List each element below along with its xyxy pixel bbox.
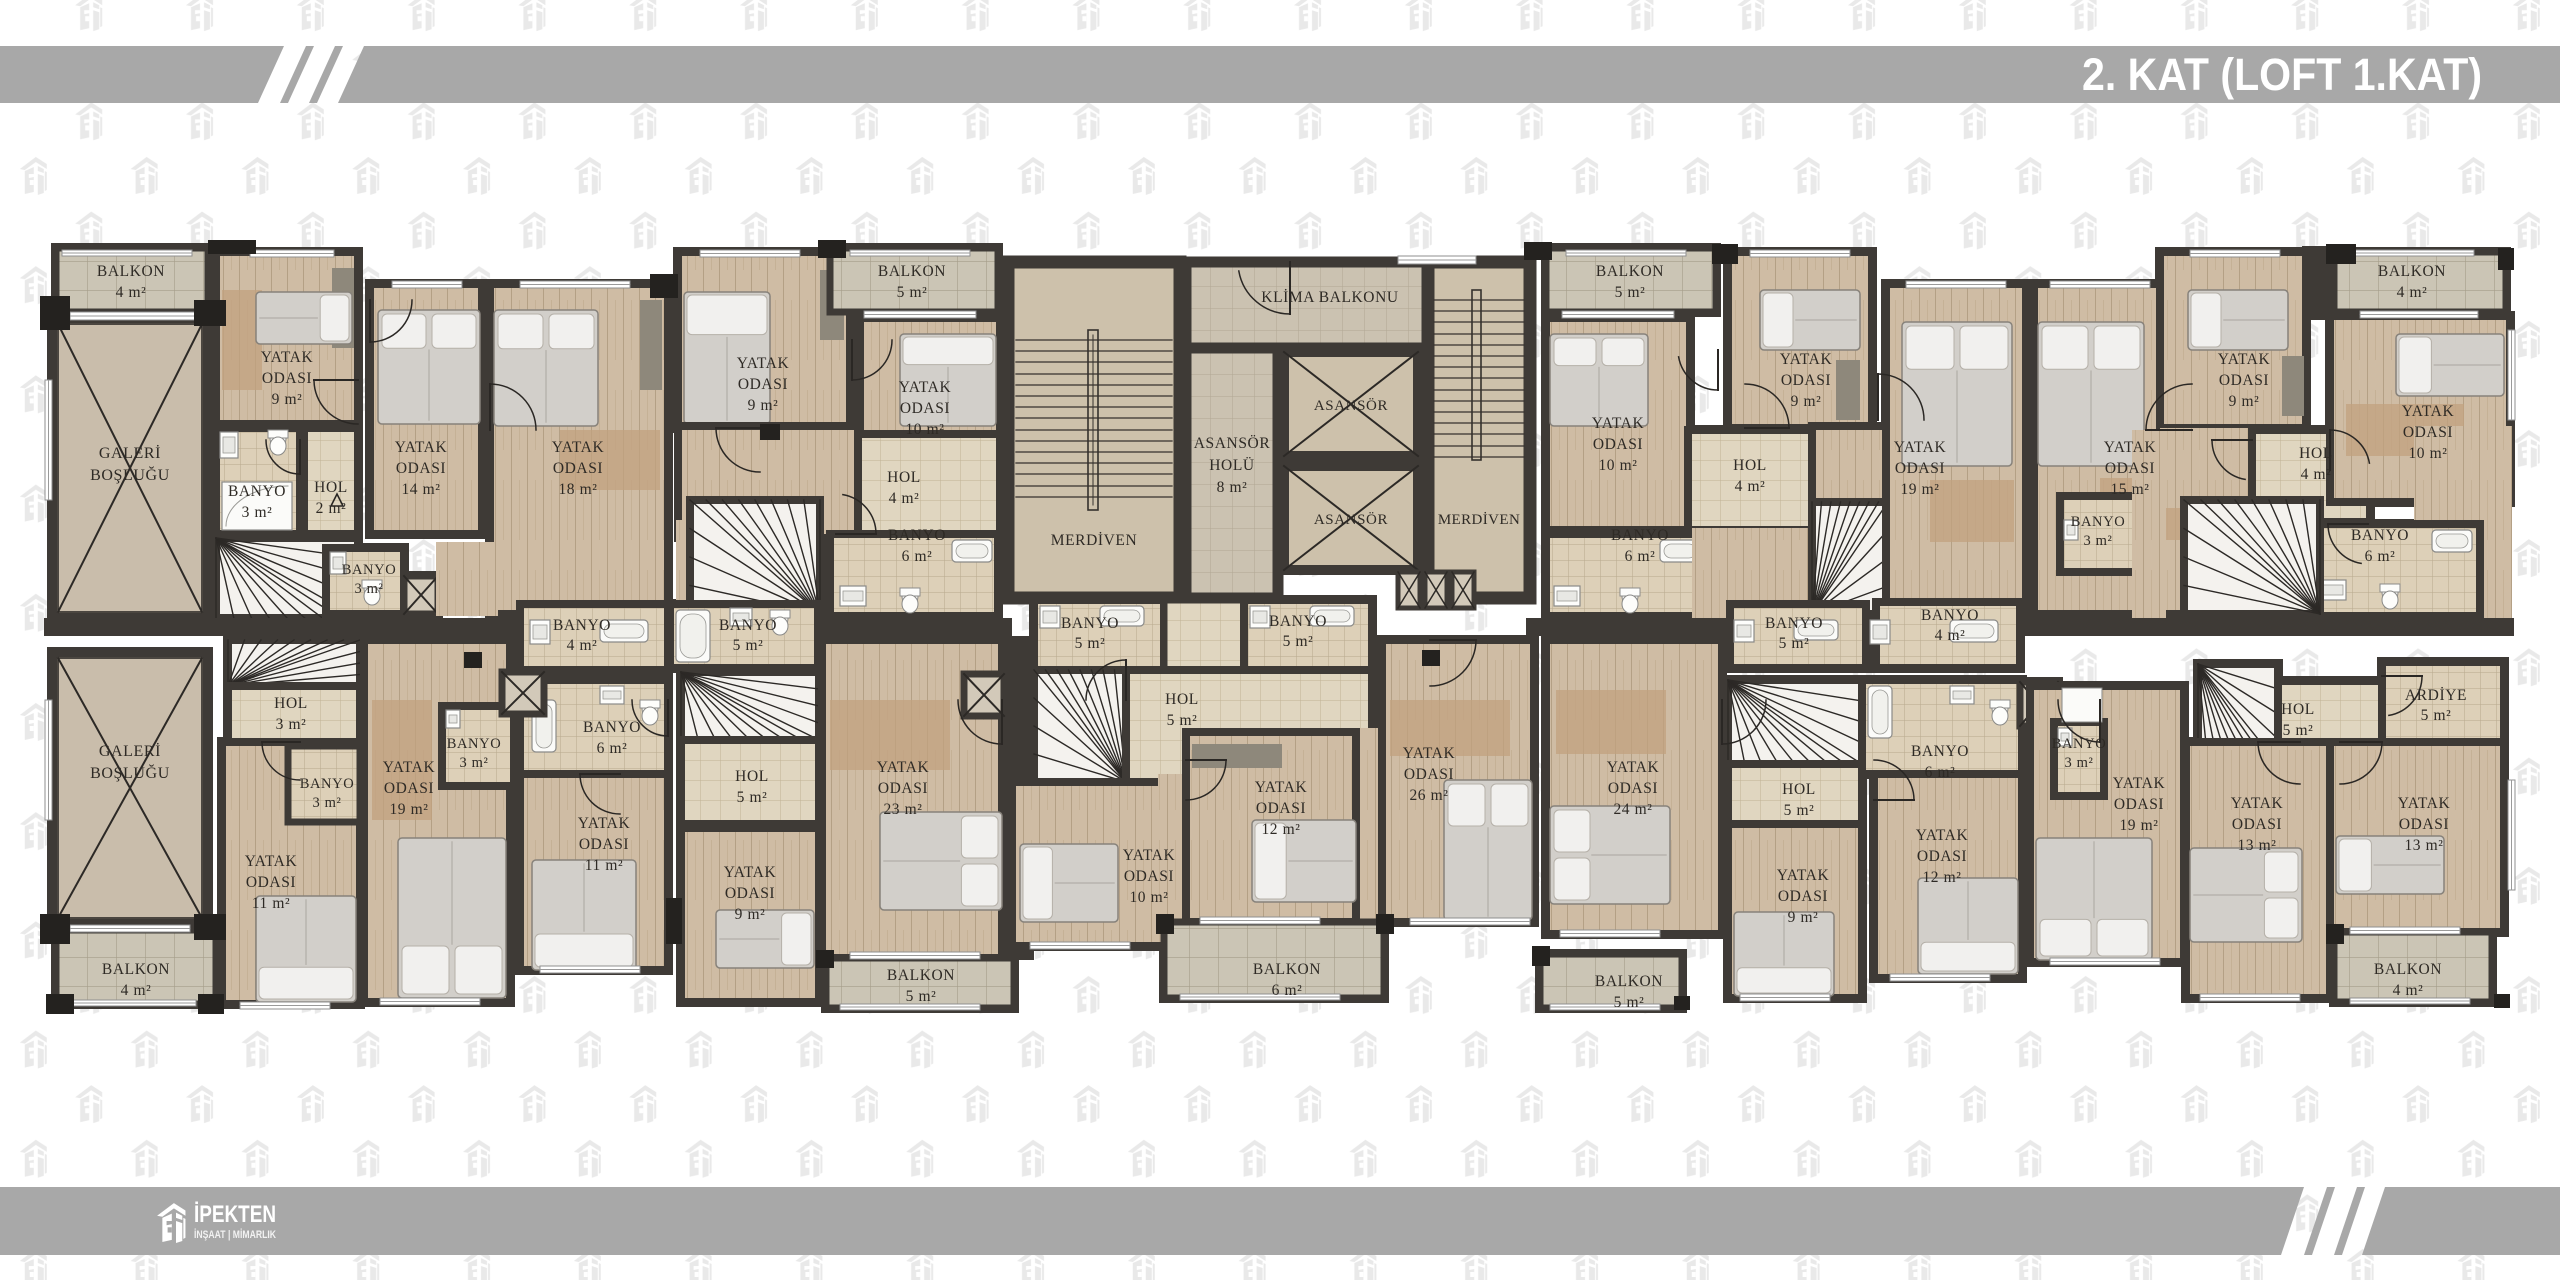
svg-text:YATAKODASI11 m²: YATAKODASI11 m² bbox=[245, 853, 298, 912]
svg-text:YATAKODASI10 m²: YATAKODASI10 m² bbox=[1123, 847, 1176, 906]
svg-text:YATAKODASI13 m²: YATAKODASI13 m² bbox=[2398, 795, 2451, 854]
svg-text:YATAKODASI13 m²: YATAKODASI13 m² bbox=[2231, 795, 2284, 854]
svg-text:YATAKODASI19 m²: YATAKODASI19 m² bbox=[1894, 439, 1947, 498]
svg-text:2. KAT (LOFT 1.KAT): 2. KAT (LOFT 1.KAT) bbox=[2082, 49, 2482, 100]
svg-text:YATAKODASI10 m²: YATAKODASI10 m² bbox=[899, 379, 952, 438]
svg-text:ASANSÖR: ASANSÖR bbox=[1314, 397, 1388, 414]
svg-text:YATAKODASI19 m²: YATAKODASI19 m² bbox=[383, 759, 436, 818]
svg-text:KLİMA BALKONU: KLİMA BALKONU bbox=[1261, 289, 1398, 306]
svg-text:YATAKODASI18 m²: YATAKODASI18 m² bbox=[552, 439, 605, 498]
svg-text:İNŞAAT | MİMARLIK: İNŞAAT | MİMARLIK bbox=[194, 1228, 276, 1241]
svg-text:YATAKODASI23 m²: YATAKODASI23 m² bbox=[877, 759, 930, 818]
svg-text:MERDİVEN: MERDİVEN bbox=[1051, 532, 1138, 549]
svg-text:MERDİVEN: MERDİVEN bbox=[1438, 512, 1520, 528]
svg-text:YATAKODASI26 m²: YATAKODASI26 m² bbox=[1403, 745, 1456, 804]
svg-text:YATAKODASI12 m²: YATAKODASI12 m² bbox=[1916, 827, 1969, 886]
svg-text:YATAKODASI14 m²: YATAKODASI14 m² bbox=[395, 439, 448, 498]
svg-text:YATAKODASI10 m²: YATAKODASI10 m² bbox=[1592, 415, 1645, 474]
svg-text:YATAKODASI24 m²: YATAKODASI24 m² bbox=[1607, 759, 1660, 818]
svg-text:İPEKTEN: İPEKTEN bbox=[194, 1201, 276, 1228]
svg-text:YATAKODASI12 m²: YATAKODASI12 m² bbox=[1255, 779, 1308, 838]
svg-text:ASANSÖR: ASANSÖR bbox=[1314, 511, 1388, 528]
svg-text:YATAKODASI10 m²: YATAKODASI10 m² bbox=[2402, 403, 2455, 462]
svg-text:YATAKODASI15 m²: YATAKODASI15 m² bbox=[2104, 439, 2157, 498]
svg-text:YATAKODASI19 m²: YATAKODASI19 m² bbox=[2113, 775, 2166, 834]
svg-text:YATAKODASI11 m²: YATAKODASI11 m² bbox=[578, 815, 631, 874]
